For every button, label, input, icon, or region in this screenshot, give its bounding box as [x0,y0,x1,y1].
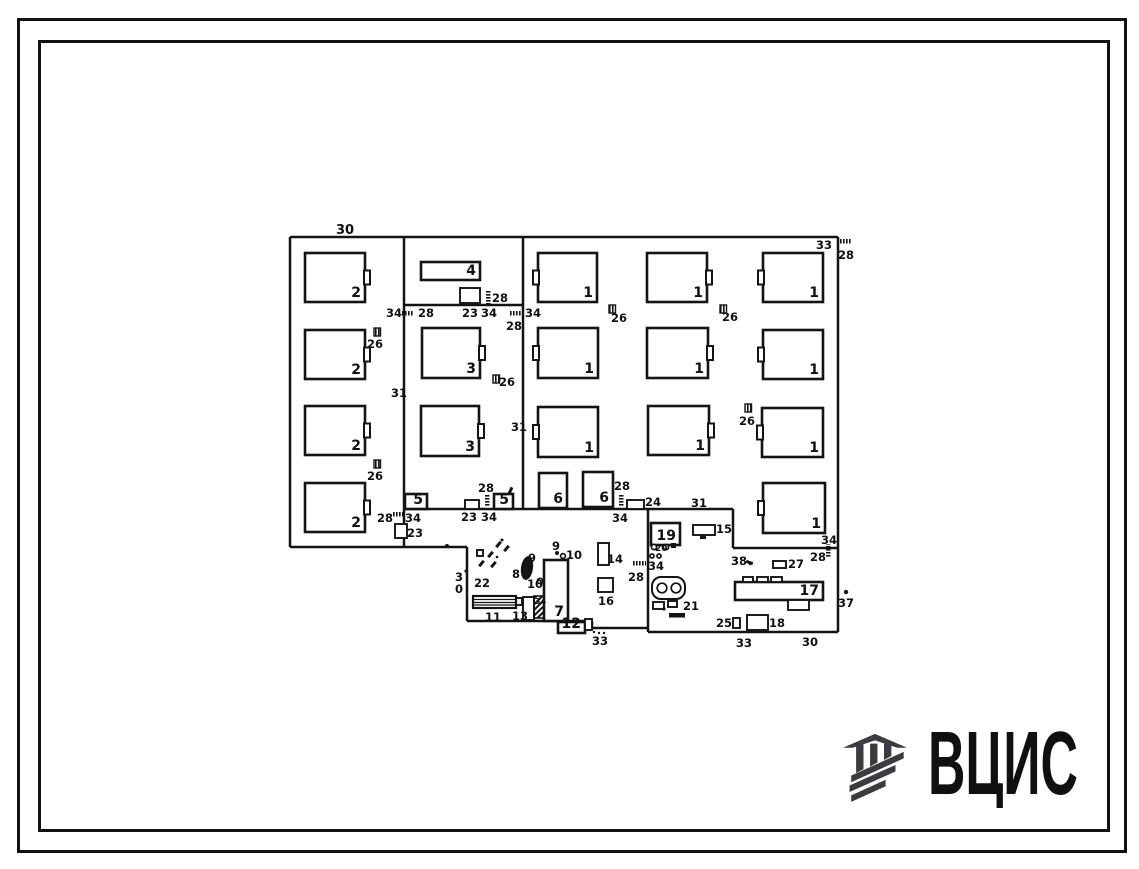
dim-label: 26 [611,311,627,325]
equipment-rect [788,600,809,610]
dim-label: 34 [405,511,421,525]
dim-label: 31 [691,496,707,510]
dim-label: 37 [838,596,854,610]
equipment-rect [598,578,613,592]
machine-notch [533,271,539,285]
tick-mark [486,291,491,304]
dim-label: 21 [683,599,699,613]
dot-mark [501,539,504,542]
dash-mark [478,560,485,567]
equipment-rect [743,577,753,582]
dim-label: 34 [386,306,402,320]
dim-label: 22 [474,576,490,590]
tick-mark [633,561,646,566]
strip-mark [700,535,706,539]
circle-mark [657,583,667,593]
dim-label: 10 [566,548,582,562]
dim-label: 30 [336,223,354,238]
dim-label: 34 [481,306,497,320]
dim-label: 33 [816,238,832,252]
dim-label: 15 [716,522,732,536]
machine-notch [364,424,370,438]
machine-label: 6 [599,490,609,506]
machine-notch [478,424,484,438]
machine-label: 19 [657,528,676,544]
dot-mark [844,590,848,594]
dot-mark [445,544,449,548]
dim-label: 28 [492,291,508,305]
equipment-rect [693,525,715,535]
dash-mark [495,541,502,548]
tick-mark [401,311,414,316]
dim-label: 18 [769,616,785,630]
machine-label: 2 [351,362,361,378]
tick-mark [392,512,405,517]
dim-label: 38 [731,554,747,568]
dim-label: 34 [612,511,628,525]
machine-notch [479,346,485,360]
machine-notch [706,271,712,285]
dim-label: 28 [478,481,494,495]
dim-label: 34 [525,306,541,320]
dim-label: 34 [648,559,664,573]
vcis-logo: ВЦИС [836,712,1088,808]
dim-label: 34 [821,533,837,547]
dim-label: 23 [461,510,477,524]
equipment-rect [627,500,644,509]
machine-label: 2 [351,438,361,454]
equipment-rect [773,561,786,568]
dim-label: 26 [367,469,383,483]
circle-mark [561,554,566,559]
dim-label: 26 [367,337,383,351]
machine-notch [758,348,764,362]
dim-label: 33 [736,636,752,650]
machine-notch [758,271,764,285]
dim-label: 13 [512,609,528,623]
dim-label: 20 [655,544,668,554]
machine-notch [533,425,539,439]
dot-mark [662,607,665,610]
dim-label: 14 [607,552,623,566]
dim-label: 30 [802,635,818,649]
machine-label: 3 [465,439,475,455]
dim-label: 25 [716,616,732,630]
tick-mark [485,494,490,507]
dim-label: 23 [462,306,478,320]
hatch-square [745,404,752,412]
dim-label: 26 [722,310,738,324]
dim-label: 34 [481,510,497,524]
dim-label: 28 [418,306,434,320]
dim-label: 24 [645,495,661,509]
dash-mark [503,545,510,552]
equipment-rect [747,615,768,630]
machine-label: 1 [693,285,703,301]
hatch-square [374,460,381,468]
dim-label: 11 [485,610,501,624]
strip-mark [669,613,685,618]
equipment-rect [585,619,592,630]
dim-label: 23 [407,526,423,540]
dim-label: 16 [598,594,614,608]
dim-label: 28 [614,479,630,493]
dim-label: 28 [628,570,644,584]
dim-label: 31 [391,386,407,400]
dot-mark [593,631,595,633]
equipment-rect [653,602,664,609]
vcis-logo-graphic: ВЦИС [836,712,1088,808]
hatch-square [374,328,381,336]
dim-label: 28 [377,511,393,525]
circle-mark [650,554,654,558]
equipment-rect [460,288,480,303]
dim-label: 34 [535,597,547,606]
equipment-rect [668,601,677,607]
machine-label: 1 [584,440,594,456]
dot-mark [749,563,751,565]
tick-mark [838,239,851,244]
dim-label: 33 [592,634,608,648]
dim-label: 27 [788,557,804,571]
vcis-logo-text: ВЦИС [928,714,1078,808]
machine-label: 4 [466,263,476,279]
machine-label: 1 [809,440,819,456]
dot-mark [496,556,499,559]
machine-label: 12 [562,616,581,632]
machine-label: 1 [583,285,593,301]
dim-label: 9 [552,539,560,553]
machine-notch [364,271,370,285]
equipment-rect [757,577,768,582]
dim-label: 9 [528,551,536,565]
equipment-rect [733,618,740,628]
machine-label: 2 [351,515,361,531]
machine-label: 1 [694,361,704,377]
tick-mark [619,494,624,507]
dim-label: 26 [499,375,515,389]
machine-notch [364,501,370,515]
dim-label: 26 [739,414,755,428]
dim-label: 28 [810,550,826,564]
machine-label: 3 [466,361,476,377]
machine-label: 1 [811,516,821,532]
equipment-rect [395,524,407,538]
machine-notch [707,346,713,360]
dim-label: 28 [506,319,522,333]
dim-label: 0 [455,582,463,596]
machine-label: 2 [351,285,361,301]
machine-notch [757,426,763,440]
equipment-rect [771,577,782,582]
machine-notch [708,424,714,438]
dash-mark [490,561,497,568]
dim-label: 8 [512,567,520,581]
equipment-rect [477,550,483,556]
dim-label: 10 [527,577,543,591]
tick-mark [510,311,523,316]
square-mark [671,543,676,548]
machine-label: 1 [584,361,594,377]
machine-notch [533,346,539,360]
dash-mark [487,551,494,558]
machine-label: 1 [695,438,705,454]
vcis-logo-emblem [843,734,907,802]
machine-label: 1 [809,362,819,378]
circle-mark [657,554,661,558]
machine-label: 1 [809,285,819,301]
machine-label: 17 [800,583,819,599]
circle-mark [671,583,681,593]
machine-label: 5 [499,492,509,508]
machine-notch [758,501,764,515]
equipment-rect [465,500,479,509]
machine-label: 6 [553,491,563,507]
dim-label: 28 [838,248,854,262]
dot-mark [464,569,467,572]
machine-label: 5 [413,492,423,508]
dim-label: 31 [511,420,527,434]
